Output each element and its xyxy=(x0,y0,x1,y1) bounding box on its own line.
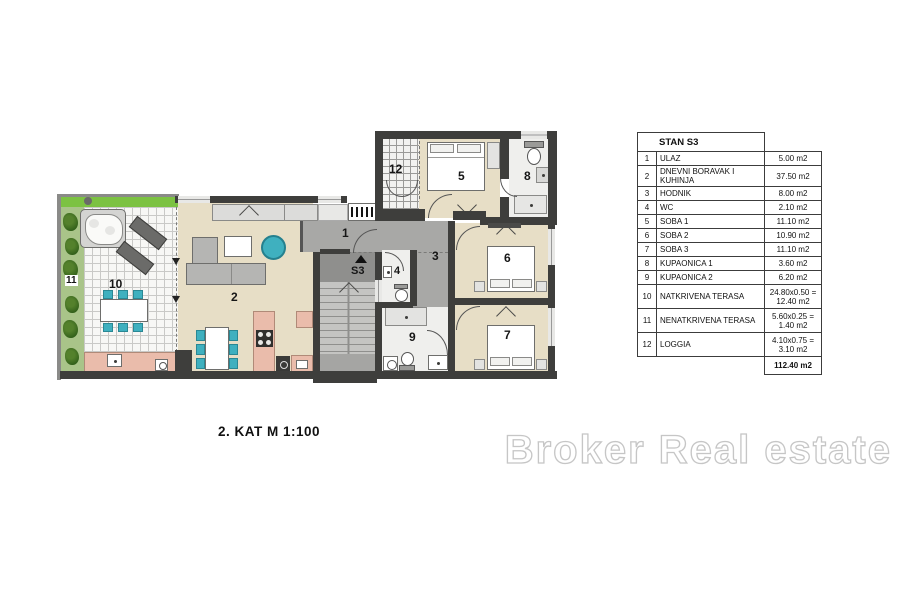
radiator-bars-icon xyxy=(351,207,375,217)
wall xyxy=(313,252,320,378)
area-line: 2.10 m2 xyxy=(768,203,818,212)
table-row: 6SOBA 210.90 m2 xyxy=(638,229,822,243)
room-label-10: 10 xyxy=(109,278,122,290)
table-row: 2DNEVNI BORAVAK I KUHINJA37.50 m2 xyxy=(638,166,822,187)
room-label-8: 8 xyxy=(524,170,531,182)
room-label-4: 4 xyxy=(394,265,400,277)
row-area: 11.10 m2 xyxy=(765,215,822,229)
toilet-bowl-icon xyxy=(401,352,414,366)
row-area: 5.00 m2 xyxy=(765,152,822,166)
area-line: 5.60x0.25 = xyxy=(768,312,818,321)
planter-box-circle xyxy=(159,362,167,370)
window xyxy=(178,196,210,203)
stair-landing-upper xyxy=(320,252,377,282)
terrace-drain-icon xyxy=(84,197,92,205)
plant-icon xyxy=(65,348,79,365)
unit-arrow-icon xyxy=(355,255,367,263)
total-area: 112.40 m2 xyxy=(765,357,822,375)
dining-chair xyxy=(196,344,205,355)
entry-1-floor xyxy=(303,221,455,252)
burner-icon xyxy=(258,332,263,337)
legend-header-spacer xyxy=(765,133,822,152)
washer-drum-icon xyxy=(387,360,397,370)
row-name: LOGGIA xyxy=(657,333,765,357)
row-num: 12 xyxy=(638,333,657,357)
hot-tub-seat xyxy=(89,219,99,228)
oven xyxy=(276,356,290,372)
row-name: KUPAONICA 1 xyxy=(657,257,765,271)
dining-chair xyxy=(229,358,238,369)
plant-icon xyxy=(65,296,79,313)
wall xyxy=(500,139,509,179)
dining-chair xyxy=(229,344,238,355)
row-area: 4.10x0.75 =3.10 m2 xyxy=(765,333,822,357)
bed-blanket-line xyxy=(428,157,484,158)
toilet-bowl-icon xyxy=(395,289,408,302)
bed-pillow xyxy=(457,144,481,153)
wall xyxy=(410,250,417,306)
row-name: HODNIK xyxy=(657,187,765,201)
row-num: 1 xyxy=(638,152,657,166)
area-line: 3.60 m2 xyxy=(768,259,818,268)
floorplan-page: 10 11 2 1 3 4 5 6 7 8 9 12 S3 STAN S3 1U… xyxy=(0,0,900,600)
terrace-table xyxy=(100,299,148,322)
slider-arrow-icon xyxy=(172,258,180,265)
row-area: 10.90 m2 xyxy=(765,229,822,243)
floor-scale-label: 2. KAT M 1:100 xyxy=(218,424,320,439)
terrace-chair xyxy=(103,323,113,332)
terrace-chair xyxy=(103,290,113,299)
wall xyxy=(382,302,413,308)
area-line: 6.20 m2 xyxy=(768,273,818,282)
row-area: 2.10 m2 xyxy=(765,201,822,215)
area-line: 4.10x0.75 = xyxy=(768,336,818,345)
room-label-2: 2 xyxy=(231,291,238,303)
floor-plan: 10 11 2 1 3 4 5 6 7 8 9 12 S3 xyxy=(0,0,600,420)
shower-tray xyxy=(514,195,547,214)
legend-title: STAN S3 xyxy=(638,133,765,152)
area-line: 8.00 m2 xyxy=(768,189,818,198)
slider-arrow-icon xyxy=(172,296,180,303)
wardrobe-divider xyxy=(284,204,285,221)
table-row: 9KUPAONICA 26.20 m2 xyxy=(638,271,822,285)
hot-tub xyxy=(80,209,126,248)
plant-icon xyxy=(63,213,78,231)
loggia-dashed-line xyxy=(419,141,421,199)
room-label-11: 11 xyxy=(65,275,78,286)
table-row: 10NATKRIVENA TERASA24.80x0.50 =12.40 m2 xyxy=(638,285,822,309)
area-line: 11.10 m2 xyxy=(768,217,818,226)
plant-icon xyxy=(65,238,79,255)
door-gap xyxy=(375,280,382,302)
room-label-1: 1 xyxy=(342,227,349,239)
wall xyxy=(375,209,425,221)
row-num: 10 xyxy=(638,285,657,309)
window xyxy=(521,131,547,139)
area-line: 1.40 m2 xyxy=(768,321,818,330)
washing-machine xyxy=(383,356,398,371)
row-num: 8 xyxy=(638,257,657,271)
toilet-tank xyxy=(524,141,544,148)
window xyxy=(548,308,555,346)
nightstand xyxy=(536,281,547,292)
table-row: 5SOBA 111.10 m2 xyxy=(638,215,822,229)
room-label-3: 3 xyxy=(432,250,439,262)
terrace-chair xyxy=(118,323,128,332)
hot-tub-seat xyxy=(105,226,115,235)
planter-box xyxy=(107,354,122,367)
row-name: SOBA 2 xyxy=(657,229,765,243)
row-name: NATKRIVENA TERASA xyxy=(657,285,765,309)
sink-basin xyxy=(296,360,308,369)
sofa-seam xyxy=(231,264,232,284)
table-row: 4WC2.10 m2 xyxy=(638,201,822,215)
wardrobe-unit xyxy=(212,204,318,221)
row-area: 24.80x0.50 =12.40 m2 xyxy=(765,285,822,309)
room-label-6: 6 xyxy=(504,252,511,264)
area-line: 5.00 m2 xyxy=(768,154,818,163)
nightstand xyxy=(536,359,547,370)
row-num: 7 xyxy=(638,243,657,257)
wall xyxy=(500,197,509,218)
nightstand xyxy=(474,281,485,292)
bed-pillow xyxy=(512,357,532,366)
burner-icon xyxy=(266,332,271,337)
row-name: SOBA 1 xyxy=(657,215,765,229)
oven-dial-icon xyxy=(280,361,288,369)
stair-landing-lower xyxy=(320,354,377,371)
row-name: KUPAONICA 2 xyxy=(657,271,765,285)
area-line: 3.10 m2 xyxy=(768,345,818,354)
door-arc xyxy=(500,178,517,197)
terrace-chair xyxy=(118,290,128,299)
window xyxy=(318,196,341,203)
coffee-table xyxy=(224,236,252,257)
area-line: 12.40 m2 xyxy=(768,297,818,306)
wall xyxy=(375,131,383,221)
row-area: 8.00 m2 xyxy=(765,187,822,201)
row-area: 37.50 m2 xyxy=(765,166,822,187)
area-line: 24.80x0.50 = xyxy=(768,288,818,297)
row-num: 5 xyxy=(638,215,657,229)
wall xyxy=(320,249,350,254)
armchair xyxy=(261,235,286,260)
wall xyxy=(488,223,521,228)
room-label-5: 5 xyxy=(458,170,465,182)
wall xyxy=(313,376,377,383)
terrace-green-strip-top xyxy=(61,197,178,207)
row-num: 6 xyxy=(638,229,657,243)
row-name: NENATKRIVENA TERASA xyxy=(657,309,765,333)
wardrobe-room5 xyxy=(487,142,500,169)
kitchen-counter xyxy=(296,311,313,328)
row-area: 11.10 m2 xyxy=(765,243,822,257)
dining-chair xyxy=(196,330,205,341)
burner-icon xyxy=(266,340,271,345)
total-spacer xyxy=(638,357,765,375)
row-area: 6.20 m2 xyxy=(765,271,822,285)
entry-niche xyxy=(318,204,348,221)
row-num: 2 xyxy=(638,166,657,187)
stove xyxy=(256,330,273,347)
wall xyxy=(300,221,303,252)
bed-pillow xyxy=(512,279,532,288)
area-line: 37.50 m2 xyxy=(768,172,818,181)
dining-chair xyxy=(196,358,205,369)
dining-table xyxy=(205,327,229,370)
row-num: 4 xyxy=(638,201,657,215)
row-area: 3.60 m2 xyxy=(765,257,822,271)
sliding-door-line xyxy=(176,207,178,352)
wall xyxy=(60,371,557,379)
area-line: 10.90 m2 xyxy=(768,231,818,240)
table-row: 11NENATKRIVENA TERASA5.60x0.25 =1.40 m2 xyxy=(638,309,822,333)
table-row: 3HODNIK8.00 m2 xyxy=(638,187,822,201)
room-label-9: 9 xyxy=(409,331,416,343)
dining-chair xyxy=(229,330,238,341)
table-row: 12LOGGIA4.10x0.75 =3.10 m2 xyxy=(638,333,822,357)
wall xyxy=(448,298,555,305)
row-name: SOBA 3 xyxy=(657,243,765,257)
table-row: 7SOBA 311.10 m2 xyxy=(638,243,822,257)
row-num: 3 xyxy=(638,187,657,201)
terrace-chair xyxy=(133,290,143,299)
row-name: WC xyxy=(657,201,765,215)
row-area: 5.60x0.25 =1.40 m2 xyxy=(765,309,822,333)
room-label-7: 7 xyxy=(504,329,511,341)
terrace-chair xyxy=(133,323,143,332)
row-num: 11 xyxy=(638,309,657,333)
nightstand xyxy=(474,359,485,370)
row-num: 9 xyxy=(638,271,657,285)
row-name: DNEVNI BORAVAK I KUHINJA xyxy=(657,166,765,187)
wall xyxy=(548,131,557,222)
row-name: ULAZ xyxy=(657,152,765,166)
bed-pillow xyxy=(430,144,454,153)
area-line: 11.10 m2 xyxy=(768,245,818,254)
table-row: 1ULAZ5.00 m2 xyxy=(638,152,822,166)
toilet-bowl-icon xyxy=(527,148,541,165)
table-row: 8KUPAONICA 13.60 m2 xyxy=(638,257,822,271)
bed-pillow xyxy=(490,357,510,366)
sink xyxy=(428,355,448,370)
plant-icon xyxy=(63,320,78,338)
area-legend-table: STAN S3 1ULAZ5.00 m2 2DNEVNI BORAVAK I K… xyxy=(637,132,822,375)
radiator xyxy=(348,203,378,221)
wall xyxy=(375,252,382,378)
room-label-12: 12 xyxy=(389,163,402,175)
burner-icon xyxy=(258,340,263,345)
sofa xyxy=(186,263,266,285)
unit-label-s3: S3 xyxy=(351,265,364,277)
window xyxy=(548,229,555,265)
planter-box xyxy=(155,359,168,371)
watermark-text: Broker Real estate xyxy=(505,428,892,473)
shower-tray xyxy=(385,307,427,326)
table-total-row: 112.40 m2 xyxy=(638,357,822,375)
bed-pillow xyxy=(490,279,510,288)
